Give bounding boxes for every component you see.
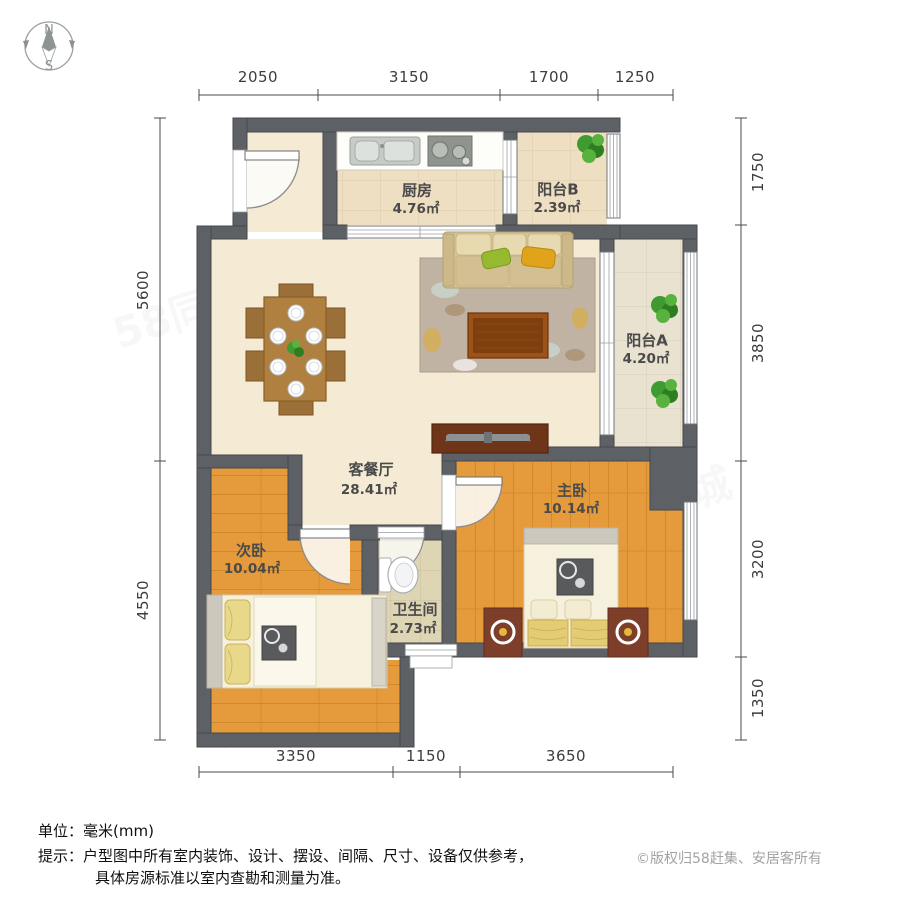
bathroom-window xyxy=(405,644,457,668)
tv-cabinet xyxy=(432,424,548,453)
dining-chair xyxy=(326,351,345,381)
dim-bottom-3650: 3650 xyxy=(546,747,586,765)
kitchen-sink xyxy=(350,137,420,165)
balcony-b-sliding-door xyxy=(503,140,517,214)
dim-bottom-1150: 1150 xyxy=(406,747,446,765)
dim-top-1250: 1250 xyxy=(615,68,655,86)
dim-bottom-3350: 3350 xyxy=(276,747,316,765)
dim-right-1350: 1350 xyxy=(749,678,767,718)
master-bedroom-area: 10.14㎡ xyxy=(543,497,599,517)
dim-left-5600: 5600 xyxy=(134,270,152,310)
dining-chair xyxy=(246,308,265,338)
bed-blanket xyxy=(528,620,568,646)
compass-east-arrow xyxy=(69,40,75,49)
dim-top-1700: 1700 xyxy=(529,68,569,86)
unit-note: 单位：毫米(mm) xyxy=(38,820,154,841)
living-dining-area: 28.41㎡ xyxy=(341,478,397,498)
master-bed xyxy=(524,528,618,648)
compass-south-label: S xyxy=(45,59,53,74)
tip-line-2: 具体房源标准以室内查勘和测量为准。 xyxy=(95,867,350,888)
balcony-b-window xyxy=(607,134,620,218)
sofa-pillow-yellow xyxy=(521,246,556,269)
floor-plan-drawing: N S xyxy=(0,0,900,900)
tip-line-1: 提示：户型图中所有室内装饰、设计、摆设、间隔、尺寸、设备仅供参考， xyxy=(38,845,533,866)
stove xyxy=(428,136,472,166)
compass: N S xyxy=(23,22,75,74)
bed-footboard xyxy=(372,598,386,686)
dim-top-2050: 2050 xyxy=(238,68,278,86)
master-bedroom-window xyxy=(684,502,697,620)
kitchen-counter xyxy=(337,132,503,170)
compass-west-arrow xyxy=(23,40,29,49)
dining-chair xyxy=(246,351,265,381)
sofa xyxy=(443,232,573,288)
compass-north-label: N xyxy=(44,23,54,38)
dim-right-1750: 1750 xyxy=(749,152,767,192)
bed-pillow xyxy=(531,600,557,619)
copyright-note: ©版权归58赶集、安居客所有 xyxy=(636,848,822,868)
balcony-a-window xyxy=(684,252,697,424)
bed-pillow xyxy=(565,600,591,619)
dim-top-3150: 3150 xyxy=(389,68,429,86)
nightstand-right xyxy=(608,608,648,657)
dim-right-3200: 3200 xyxy=(749,539,767,579)
coffee-table xyxy=(468,313,548,358)
bathroom-area: 2.73㎡ xyxy=(390,617,437,637)
dining-chair xyxy=(326,308,345,338)
second-bed xyxy=(207,595,387,688)
dim-right-3850: 3850 xyxy=(749,323,767,363)
living-dining-label: 客餐厅 xyxy=(348,459,393,480)
dim-left-4550: 4550 xyxy=(134,580,152,620)
second-bedroom-area: 10.04㎡ xyxy=(224,557,280,577)
balcony-a-area: 4.20㎡ xyxy=(623,347,670,367)
balcony-b-area: 2.39㎡ xyxy=(534,196,581,216)
nightstand-left xyxy=(484,608,522,657)
balcony-a-sliding-door xyxy=(600,252,614,435)
floor-plan-page: 58同城 安居客 58同城 安居客 xyxy=(0,0,900,900)
kitchen-area: 4.76㎡ xyxy=(393,197,440,217)
toilet xyxy=(379,557,418,593)
